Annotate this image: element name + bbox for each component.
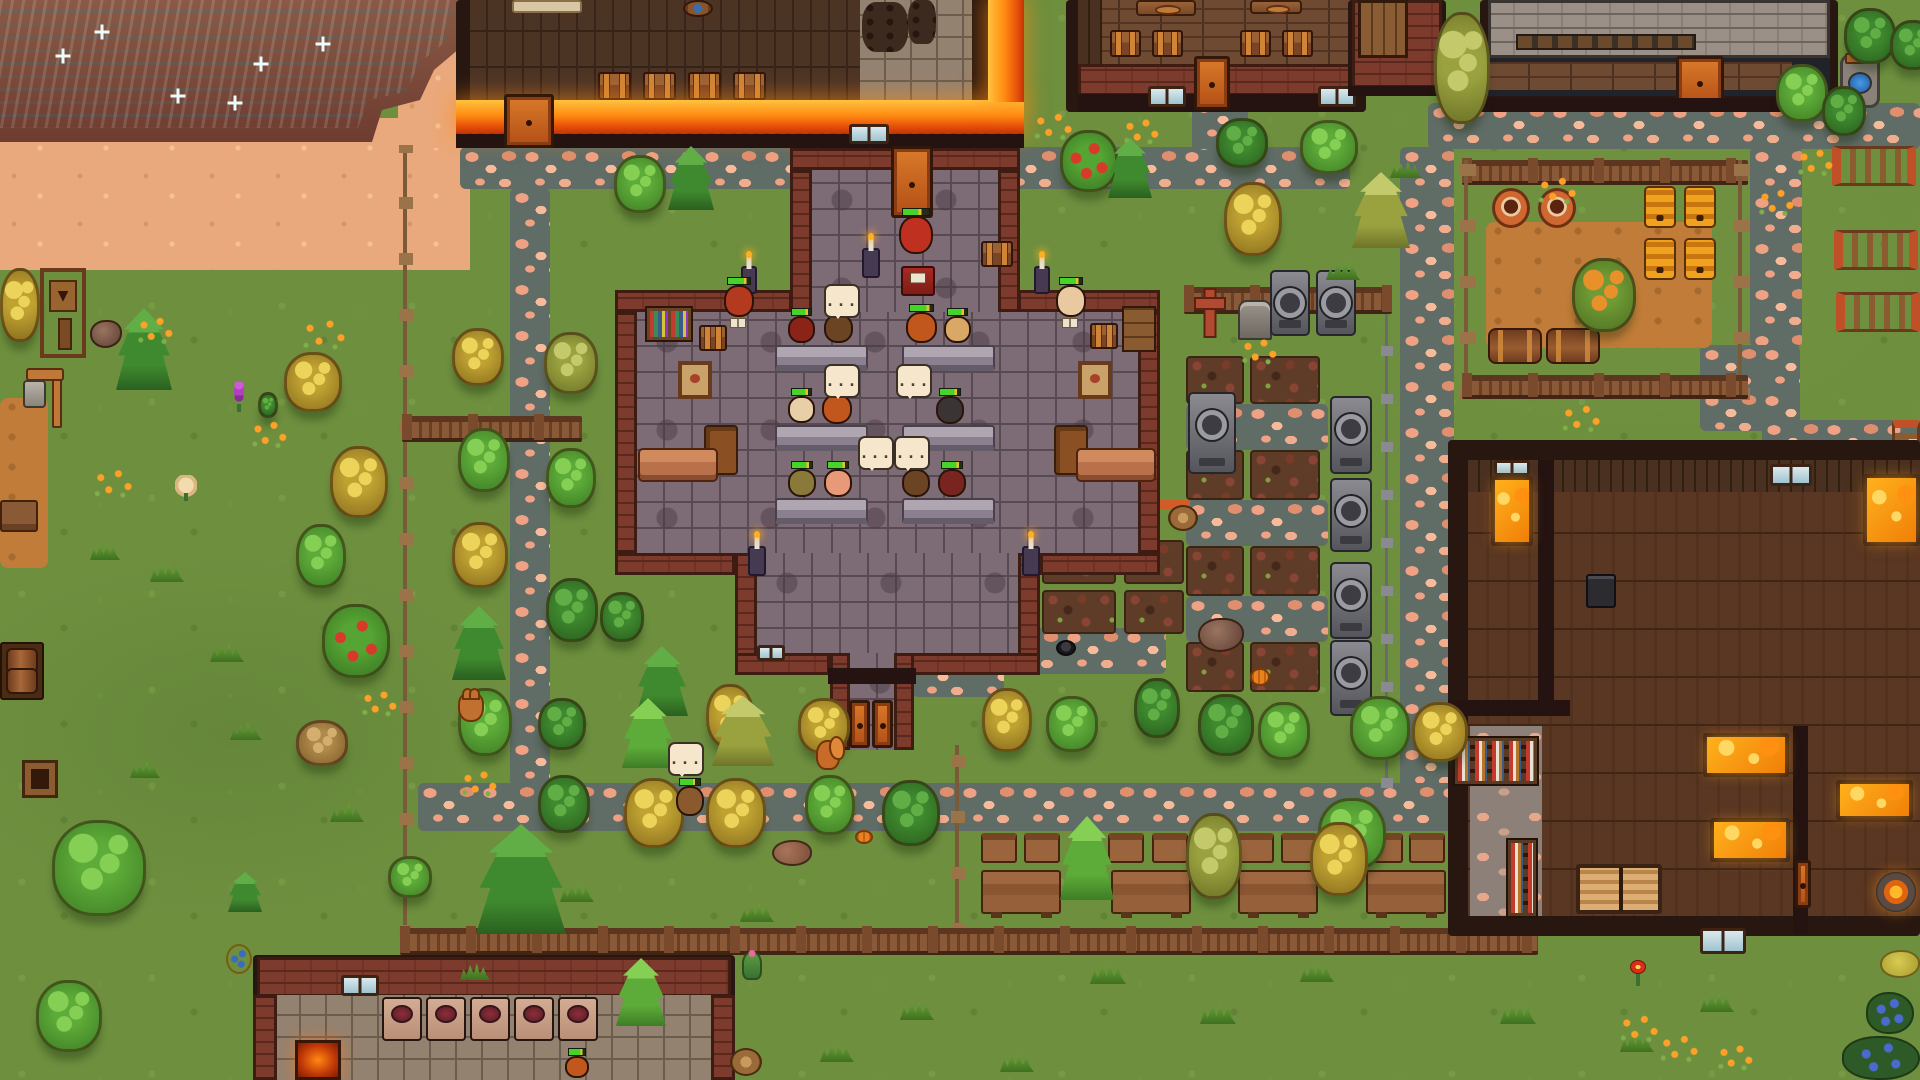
strip bbox=[1448, 700, 1570, 716]
water-pump[interactable] bbox=[1188, 392, 1236, 474]
forge[interactable] bbox=[295, 1040, 341, 1080]
tree bbox=[1134, 678, 1180, 738]
table-l[interactable] bbox=[1111, 870, 1191, 914]
tree bbox=[1310, 822, 1368, 896]
speech-bubble[interactable]: ... bbox=[824, 364, 860, 398]
chest[interactable] bbox=[1282, 30, 1313, 57]
fox[interactable] bbox=[458, 692, 484, 722]
wall-brick bbox=[615, 312, 637, 553]
villager[interactable] bbox=[565, 1056, 589, 1078]
shelf[interactable] bbox=[1506, 838, 1538, 918]
wall-brick bbox=[615, 290, 792, 312]
flower-red bbox=[1628, 958, 1648, 986]
flowers bbox=[1618, 1014, 1662, 1044]
flowers bbox=[360, 690, 400, 718]
path bbox=[1186, 500, 1328, 546]
kiln[interactable] bbox=[558, 997, 598, 1041]
tree bbox=[1300, 120, 1358, 174]
tree bbox=[296, 720, 348, 766]
tuft bbox=[150, 560, 184, 582]
flowers bbox=[1757, 188, 1797, 218]
tree bbox=[538, 775, 590, 833]
stump bbox=[1168, 505, 1198, 531]
tree bbox=[458, 428, 510, 492]
ladder[interactable] bbox=[1832, 146, 1916, 186]
tuft bbox=[560, 880, 594, 902]
sparkle bbox=[228, 96, 241, 109]
chest[interactable] bbox=[733, 72, 766, 100]
speech-bubble[interactable]: ... bbox=[896, 364, 932, 398]
tree bbox=[228, 872, 262, 912]
tuft bbox=[330, 800, 364, 822]
tree bbox=[1258, 702, 1310, 760]
bench-s[interactable] bbox=[1108, 833, 1144, 863]
cross bbox=[1194, 288, 1226, 338]
trough[interactable] bbox=[1710, 818, 1790, 862]
scene: .................. bbox=[0, 0, 1920, 1080]
strip bbox=[1538, 460, 1554, 716]
flowers bbox=[1560, 404, 1604, 434]
tuft bbox=[820, 1040, 854, 1062]
item-ball bbox=[226, 944, 252, 974]
plot bbox=[1250, 546, 1320, 596]
tree bbox=[452, 328, 504, 386]
trough[interactable] bbox=[1863, 474, 1920, 546]
table-l[interactable] bbox=[1238, 870, 1318, 914]
berry bbox=[1866, 992, 1914, 1034]
lamp[interactable] bbox=[52, 368, 62, 428]
speech-bubble[interactable]: ... bbox=[894, 436, 930, 470]
glowing-roof-edge bbox=[988, 0, 1024, 102]
wall-brick bbox=[253, 995, 277, 1080]
water bbox=[0, 0, 460, 130]
chest[interactable] bbox=[643, 72, 676, 100]
bench-s[interactable] bbox=[1409, 833, 1445, 863]
tree bbox=[882, 780, 940, 846]
strip bbox=[828, 668, 916, 684]
villager[interactable] bbox=[936, 396, 964, 424]
tree bbox=[546, 448, 596, 508]
fence-h bbox=[400, 928, 1538, 955]
couch[interactable] bbox=[638, 448, 718, 482]
wall-col bbox=[1468, 460, 1920, 492]
tree bbox=[805, 775, 855, 835]
sparkle bbox=[55, 48, 71, 64]
tree bbox=[1776, 64, 1828, 122]
tree bbox=[452, 606, 506, 680]
crate[interactable] bbox=[22, 760, 58, 798]
dirt bbox=[0, 398, 48, 568]
water-pump[interactable] bbox=[1330, 478, 1372, 552]
flower-purple bbox=[230, 382, 248, 412]
plot bbox=[1124, 590, 1184, 634]
hive[interactable] bbox=[1644, 186, 1676, 228]
floor-wood-h bbox=[1488, 62, 1792, 90]
rope-v bbox=[1736, 160, 1748, 400]
bookshelf[interactable] bbox=[645, 306, 693, 342]
tree bbox=[1350, 696, 1410, 760]
flowers bbox=[1032, 112, 1076, 142]
tuft bbox=[740, 900, 774, 922]
tree bbox=[1412, 702, 1468, 762]
book bbox=[1062, 318, 1078, 328]
speech-bubble[interactable]: ... bbox=[668, 742, 704, 776]
pot[interactable] bbox=[1492, 188, 1530, 228]
barrel-v[interactable] bbox=[683, 0, 713, 17]
bench-s[interactable] bbox=[1024, 833, 1060, 863]
sparkle bbox=[95, 25, 109, 39]
firepit[interactable] bbox=[1876, 872, 1916, 912]
window bbox=[341, 975, 379, 996]
tree bbox=[330, 446, 388, 518]
bench-w[interactable] bbox=[0, 500, 38, 532]
reading-monk[interactable] bbox=[1056, 285, 1086, 317]
wall-brick bbox=[615, 553, 735, 575]
tuft bbox=[1326, 258, 1360, 280]
villager[interactable] bbox=[788, 469, 816, 497]
rope-v bbox=[401, 145, 411, 937]
strip bbox=[1348, 86, 1446, 96]
tree bbox=[1046, 696, 1098, 752]
path bbox=[1750, 147, 1802, 347]
tree bbox=[614, 155, 666, 213]
hive[interactable] bbox=[1684, 238, 1716, 280]
rug-dark bbox=[862, 2, 908, 52]
tree bbox=[600, 592, 644, 642]
chest[interactable] bbox=[1110, 30, 1141, 57]
table-l[interactable] bbox=[1366, 870, 1446, 914]
tree bbox=[982, 688, 1032, 752]
bush-yellow bbox=[1880, 950, 1920, 978]
water-pump[interactable] bbox=[1330, 562, 1372, 639]
chest[interactable] bbox=[598, 72, 631, 100]
bench-s[interactable] bbox=[1238, 833, 1274, 863]
kiln[interactable] bbox=[382, 997, 422, 1041]
barrel-rack[interactable] bbox=[0, 642, 44, 700]
plant bbox=[742, 952, 762, 980]
flowers bbox=[250, 420, 290, 450]
grave[interactable] bbox=[1238, 300, 1272, 340]
kiln[interactable] bbox=[514, 997, 554, 1041]
candle[interactable] bbox=[1034, 266, 1050, 294]
tree bbox=[1224, 182, 1282, 256]
rope-v bbox=[1462, 160, 1474, 400]
wall-brick bbox=[1040, 553, 1160, 575]
church-south-door[interactable] bbox=[872, 700, 893, 748]
speech-bubble[interactable]: ... bbox=[824, 284, 860, 318]
tuft bbox=[210, 640, 244, 662]
sign[interactable] bbox=[40, 268, 86, 358]
pew[interactable] bbox=[902, 498, 995, 524]
tree bbox=[1216, 118, 1268, 168]
stump bbox=[730, 1048, 762, 1076]
flowers bbox=[92, 468, 136, 500]
candle[interactable] bbox=[1022, 546, 1040, 576]
floor-church bbox=[757, 553, 1018, 653]
tree bbox=[538, 698, 586, 750]
wall-brick bbox=[790, 170, 812, 312]
berry bbox=[1842, 1036, 1920, 1080]
flowers bbox=[1796, 148, 1836, 178]
tree bbox=[388, 856, 432, 898]
window bbox=[1148, 86, 1186, 107]
chest[interactable] bbox=[1152, 30, 1183, 57]
speech-bubble[interactable]: ... bbox=[858, 436, 894, 470]
flowers bbox=[1122, 118, 1162, 146]
wall-brick bbox=[910, 653, 1040, 675]
villager[interactable] bbox=[938, 469, 966, 497]
bench-s[interactable] bbox=[981, 833, 1017, 863]
flowers bbox=[1240, 338, 1280, 366]
trough[interactable] bbox=[1491, 476, 1533, 546]
tuft bbox=[90, 540, 120, 560]
tree bbox=[1890, 20, 1920, 70]
tuft bbox=[1300, 960, 1334, 982]
ladder[interactable] bbox=[1834, 230, 1918, 270]
chest[interactable] bbox=[1090, 323, 1118, 349]
trough[interactable] bbox=[1836, 780, 1913, 820]
tuft bbox=[1700, 990, 1734, 1012]
tuft bbox=[1090, 960, 1126, 984]
plot bbox=[1042, 590, 1116, 634]
flowers bbox=[136, 316, 176, 346]
pig[interactable] bbox=[772, 840, 812, 866]
plot bbox=[1186, 546, 1244, 596]
couch[interactable] bbox=[1076, 448, 1156, 482]
window bbox=[1494, 460, 1530, 476]
barrel-h[interactable] bbox=[1546, 328, 1600, 364]
tree bbox=[706, 778, 766, 848]
hayroll[interactable] bbox=[1576, 864, 1662, 914]
tuft bbox=[900, 998, 934, 1020]
tree bbox=[1844, 8, 1896, 64]
pumpkin bbox=[1250, 668, 1270, 686]
rock bbox=[90, 320, 122, 348]
dining-hall-door[interactable] bbox=[1194, 56, 1230, 110]
tuft bbox=[230, 720, 262, 740]
tuft bbox=[1000, 1050, 1034, 1072]
tree bbox=[284, 352, 342, 412]
tree bbox=[52, 820, 146, 916]
villager[interactable] bbox=[906, 312, 937, 343]
altar[interactable] bbox=[901, 266, 935, 296]
barrel-h[interactable] bbox=[1488, 328, 1542, 364]
tree bbox=[1572, 258, 1636, 332]
pew[interactable] bbox=[775, 498, 868, 524]
rug-dark bbox=[908, 0, 936, 44]
rug-light bbox=[512, 0, 582, 13]
painting bbox=[1078, 361, 1112, 399]
kiln[interactable] bbox=[426, 997, 466, 1041]
shelfline bbox=[1516, 34, 1696, 50]
water-pump[interactable] bbox=[1330, 396, 1372, 474]
tree bbox=[1198, 694, 1254, 756]
chest[interactable] bbox=[981, 241, 1013, 267]
sparkle bbox=[315, 36, 330, 51]
sparkle bbox=[170, 88, 186, 104]
plot bbox=[1250, 450, 1320, 500]
chest[interactable] bbox=[1240, 30, 1271, 57]
candle[interactable] bbox=[748, 546, 766, 576]
villager[interactable] bbox=[788, 316, 815, 343]
ladder[interactable] bbox=[1836, 292, 1920, 332]
flowers bbox=[1658, 1034, 1702, 1064]
trough[interactable] bbox=[1703, 733, 1789, 777]
tuft bbox=[130, 758, 160, 778]
machine[interactable] bbox=[1270, 270, 1310, 336]
fence-h bbox=[1462, 375, 1748, 399]
villager[interactable] bbox=[788, 396, 815, 423]
kiln[interactable] bbox=[470, 997, 510, 1041]
chest[interactable] bbox=[699, 325, 727, 351]
flowers bbox=[1536, 176, 1580, 206]
stove[interactable] bbox=[1586, 574, 1616, 608]
chest[interactable] bbox=[688, 72, 721, 100]
flowers bbox=[300, 318, 350, 352]
reading-villager[interactable] bbox=[724, 285, 754, 317]
tree bbox=[476, 824, 566, 934]
candle[interactable] bbox=[862, 248, 880, 278]
path bbox=[510, 188, 550, 786]
tree bbox=[1186, 813, 1242, 899]
flowers bbox=[460, 770, 500, 798]
priest[interactable] bbox=[899, 216, 933, 254]
tree bbox=[296, 524, 346, 588]
church-south-door[interactable] bbox=[849, 700, 870, 748]
door[interactable] bbox=[1795, 860, 1811, 908]
tuft bbox=[1500, 1000, 1536, 1024]
bench-s[interactable] bbox=[1152, 833, 1188, 863]
tree bbox=[322, 604, 390, 678]
door-w[interactable] bbox=[1358, 0, 1408, 58]
painting bbox=[678, 361, 712, 399]
tree bbox=[544, 332, 598, 394]
table-top[interactable] bbox=[1250, 0, 1302, 14]
tuft bbox=[1200, 1000, 1236, 1024]
fence-h bbox=[1462, 160, 1748, 185]
tree bbox=[452, 522, 508, 588]
tree bbox=[1822, 86, 1866, 136]
window bbox=[1700, 928, 1746, 954]
book bbox=[730, 318, 746, 328]
flowers bbox=[1716, 1044, 1756, 1072]
pumpkin bbox=[855, 830, 873, 844]
dresser[interactable] bbox=[1122, 306, 1156, 352]
villager[interactable] bbox=[944, 316, 971, 343]
squirrel[interactable] bbox=[816, 740, 840, 770]
window bbox=[757, 645, 785, 661]
tree bbox=[36, 980, 102, 1052]
tree bbox=[546, 578, 598, 642]
hive[interactable] bbox=[1644, 238, 1676, 280]
sparkle bbox=[255, 58, 267, 70]
window bbox=[1770, 464, 1812, 486]
tree bbox=[258, 392, 278, 418]
storage-hall-door[interactable] bbox=[504, 94, 554, 148]
tree bbox=[1434, 12, 1490, 124]
tree bbox=[0, 268, 40, 342]
walking-villager[interactable] bbox=[676, 786, 704, 816]
tree bbox=[624, 778, 684, 848]
table-top[interactable] bbox=[1136, 0, 1196, 16]
villager[interactable] bbox=[824, 469, 852, 497]
hive[interactable] bbox=[1684, 186, 1716, 228]
flower-white bbox=[175, 475, 197, 501]
table-l[interactable] bbox=[981, 870, 1061, 914]
cauldron[interactable] bbox=[1056, 640, 1076, 656]
pew[interactable] bbox=[775, 425, 868, 451]
window bbox=[849, 124, 889, 144]
wall-col bbox=[1078, 0, 1102, 64]
rope-v bbox=[953, 745, 963, 935]
